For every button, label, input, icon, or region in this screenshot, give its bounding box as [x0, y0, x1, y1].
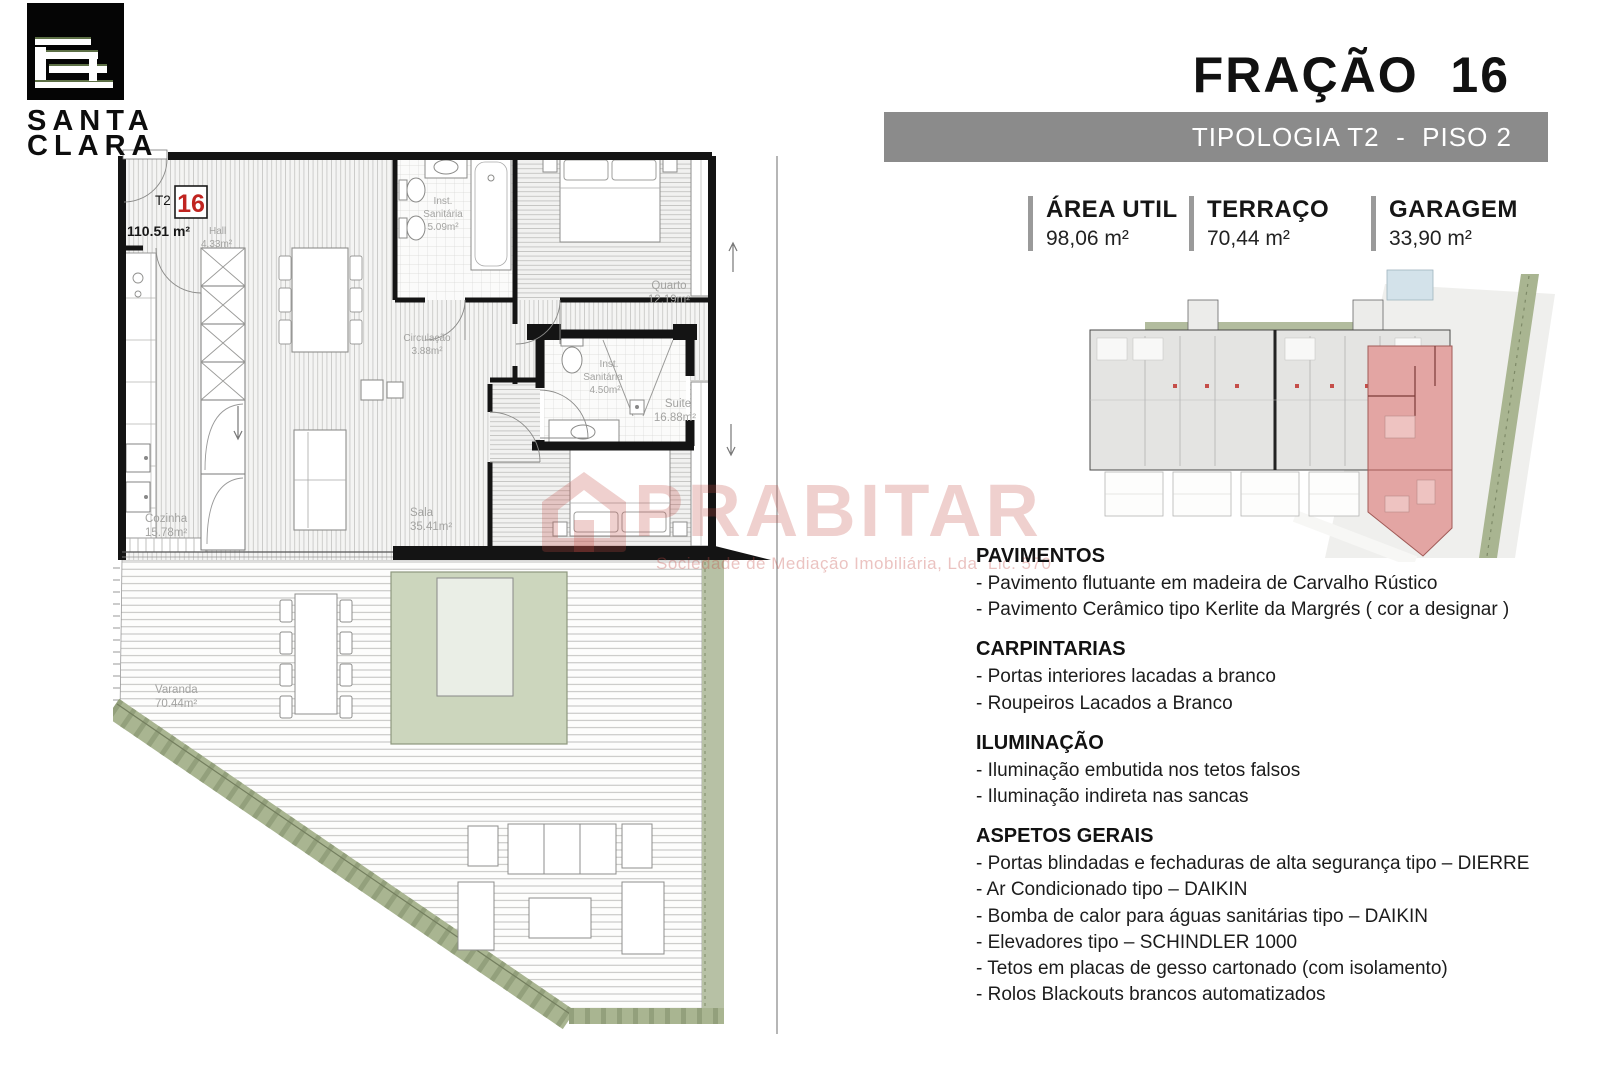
spec-heading: ASPETOS GERAIS [976, 825, 1576, 848]
spec-item: - Iluminação embutida nos tetos falsos [976, 758, 1576, 784]
label-wc2-line2: Sanitária [583, 372, 623, 383]
spec-section-aspetos-gerais: ASPETOS GERAIS - Portas blindadas e fech… [976, 825, 1576, 1008]
spec-item: - Pavimento Cerâmico tipo Kerlite da Mar… [976, 597, 1576, 623]
label-suite-name: Suite [665, 398, 691, 410]
area-util-label: ÁREA UTIL [1046, 196, 1189, 224]
garagem-label: GARAGEM [1389, 196, 1547, 224]
label-wc1-line2: Sanitária [423, 209, 463, 220]
key-plan [1085, 266, 1601, 562]
area-util-value: 98,06 m² [1046, 227, 1189, 251]
terrace-jacuzzi [437, 578, 513, 696]
key-plan-balconies [1105, 472, 1359, 516]
label-cozinha-area: 15.78m² [145, 527, 187, 539]
label-cozinha-name: Cozinha [145, 513, 188, 525]
santa-clara-logo: SANTA CLARA [27, 3, 159, 159]
spec-list: PAVIMENTOS - Pavimento flutuante em made… [976, 545, 1576, 1023]
garagem-column: GARAGEM 33,90 m² [1371, 196, 1547, 251]
spec-item: - Iluminação indireta nas sancas [976, 784, 1576, 810]
floor-plan: T2 16 110.51 m² Hall 4.33m² Inst. Sanitá… [113, 148, 785, 1048]
garagem-value: 33,90 m² [1389, 227, 1547, 251]
spec-item: - Tetos em placas de gesso cartonado (co… [976, 956, 1576, 982]
terraco-label: TERRAÇO [1207, 196, 1371, 224]
key-plan-pool [1387, 270, 1433, 300]
spec-item: - Roupeiros Lacados a Branco [976, 691, 1576, 717]
label-hall-area: 4.33m² [201, 239, 233, 250]
spec-item: - Pavimento flutuante em madeira de Carv… [976, 571, 1576, 597]
spec-section-carpintarias: CARPINTARIAS - Portas interiores lacadas… [976, 638, 1576, 716]
spec-item: - Rolos Blackouts brancos automatizados [976, 982, 1576, 1008]
label-hall-name: Hall [209, 226, 226, 237]
terraco-value: 70,44 m² [1207, 227, 1371, 251]
storage-column [201, 248, 245, 550]
terrace-edge-ticks [113, 568, 120, 700]
label-suite-area: 16.88m² [654, 412, 696, 424]
typology-banner-text: TIPOLOGIA T2 - PISO 2 [1192, 122, 1512, 153]
unit-typology: T2 [155, 193, 171, 208]
spec-item: - Ar Condicionado tipo – DAIKIN [976, 877, 1576, 903]
typology-banner: TIPOLOGIA T2 - PISO 2 [884, 112, 1548, 162]
spec-section-iluminacao: ILUMINAÇÃO - Iluminação embutida nos tet… [976, 732, 1576, 810]
spec-section-pavimentos: PAVIMENTOS - Pavimento flutuante em made… [976, 545, 1576, 623]
brochure-page: SANTA CLARA FRAÇÃO 16 TIPOLOGIA T2 - PIS… [0, 0, 1601, 1080]
terraco-column: TERRAÇO 70,44 m² [1189, 196, 1371, 251]
label-sala-name: Sala [410, 507, 434, 519]
area-summary: ÁREA UTIL 98,06 m² TERRAÇO 70,44 m² GARA… [1028, 196, 1547, 251]
label-circulacao-name: Circulação [403, 333, 451, 344]
label-quarto-name: Quarto [651, 280, 686, 292]
label-quarto-area: 12.19m² [648, 294, 690, 306]
label-sala-area: 35.41m² [410, 521, 452, 533]
label-wc2-line1: Inst. [600, 359, 619, 370]
spec-heading: CARPINTARIAS [976, 638, 1576, 661]
unit-number: 16 [177, 190, 205, 218]
spec-heading: ILUMINAÇÃO [976, 732, 1576, 755]
santa-clara-logo-icon [27, 3, 124, 100]
label-circulacao-area: 3.88m² [411, 346, 443, 357]
page-title: FRAÇÃO 16 [1193, 46, 1510, 104]
label-wc2-area: 4.50m² [589, 385, 621, 396]
spec-item: - Portas interiores lacadas a branco [976, 664, 1576, 690]
label-varanda-area: 70.44m² [155, 698, 197, 710]
spec-item: - Bomba de calor para águas sanitárias t… [976, 904, 1576, 930]
unit-area: 110.51 m² [127, 223, 190, 239]
label-varanda-name: Varanda [155, 684, 198, 696]
label-wc1-line1: Inst. [434, 196, 453, 207]
logo-text-line2: CLARA [27, 134, 159, 159]
terrace [113, 560, 724, 1020]
label-wc1-area: 5.09m² [427, 222, 459, 233]
spec-item: - Elevadores tipo – SCHINDLER 1000 [976, 930, 1576, 956]
spec-item: - Portas blindadas e fechaduras de alta … [976, 851, 1576, 877]
area-util-column: ÁREA UTIL 98,06 m² [1028, 196, 1189, 251]
spec-heading: PAVIMENTOS [976, 545, 1576, 568]
